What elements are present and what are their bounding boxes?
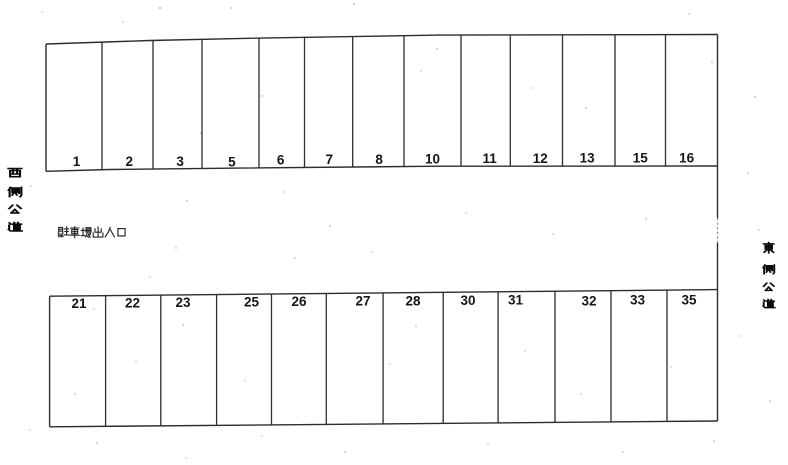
svg-text:21: 21 xyxy=(71,296,87,311)
svg-text:22: 22 xyxy=(125,296,140,311)
svg-text:12: 12 xyxy=(533,151,548,166)
svg-text:8: 8 xyxy=(375,152,383,167)
svg-text:23: 23 xyxy=(175,295,191,310)
svg-text:3: 3 xyxy=(176,154,184,169)
svg-text:26: 26 xyxy=(291,294,307,309)
svg-text:35: 35 xyxy=(681,293,697,308)
svg-text:25: 25 xyxy=(244,295,260,310)
svg-text:6: 6 xyxy=(277,152,285,167)
svg-text:33: 33 xyxy=(630,293,646,308)
svg-text:31: 31 xyxy=(508,293,524,308)
svg-text:15: 15 xyxy=(633,151,649,166)
svg-text:30: 30 xyxy=(460,293,475,308)
svg-text:27: 27 xyxy=(355,294,370,309)
svg-text:1: 1 xyxy=(73,154,81,169)
svg-text:5: 5 xyxy=(228,155,236,170)
svg-text:16: 16 xyxy=(679,150,695,165)
svg-text:2: 2 xyxy=(126,154,134,169)
svg-text:13: 13 xyxy=(580,151,596,166)
svg-text:32: 32 xyxy=(581,293,596,308)
svg-text:11: 11 xyxy=(482,151,497,166)
svg-text:28: 28 xyxy=(405,293,421,308)
svg-text:10: 10 xyxy=(425,152,440,167)
svg-text:7: 7 xyxy=(326,152,334,167)
